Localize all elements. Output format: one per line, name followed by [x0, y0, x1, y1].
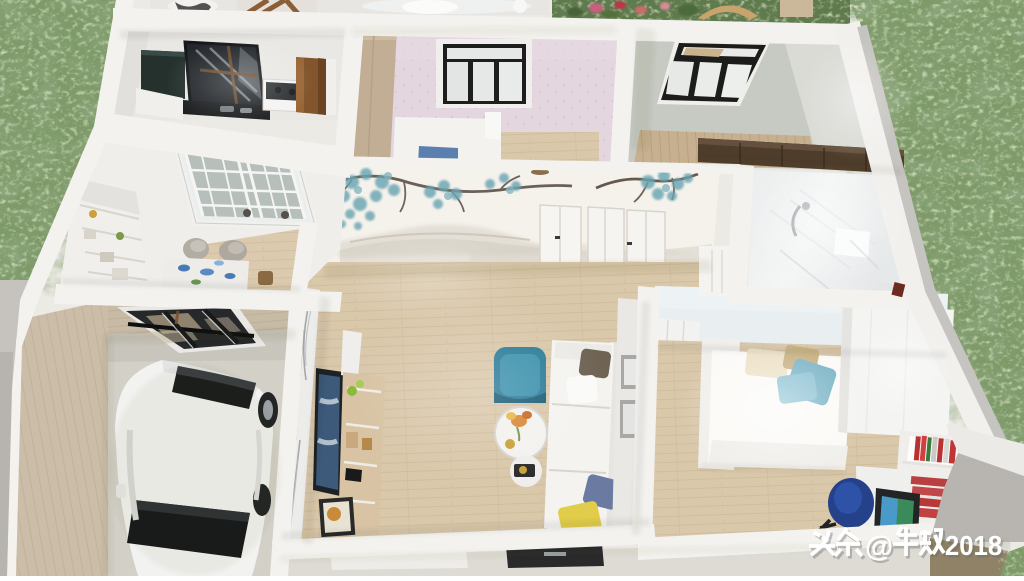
svg-text:2018: 2018: [945, 530, 1002, 561]
svg-text:@: @: [865, 531, 893, 563]
